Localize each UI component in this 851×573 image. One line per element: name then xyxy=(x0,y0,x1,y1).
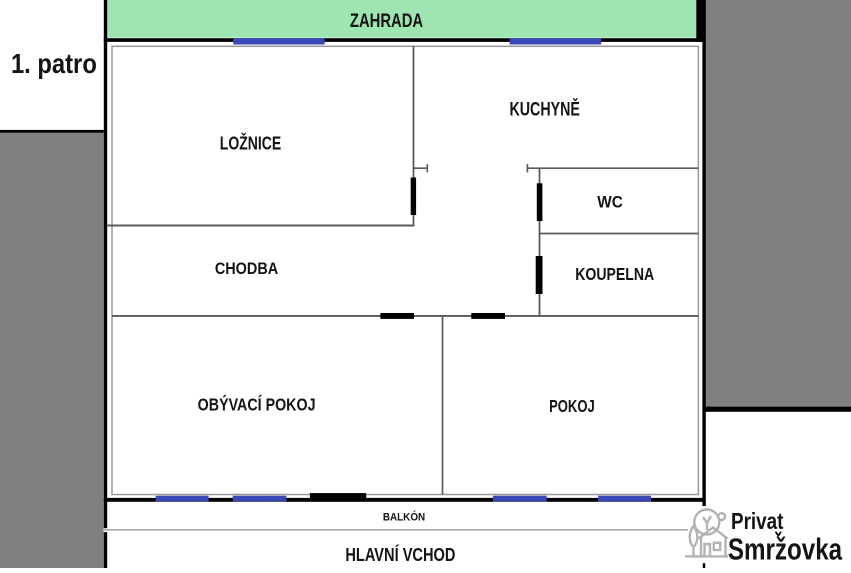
svg-text:CHODBA: CHODBA xyxy=(215,260,278,278)
svg-text:ZAHRADA: ZAHRADA xyxy=(350,10,423,31)
svg-text:WC: WC xyxy=(597,194,623,212)
svg-text:OBÝVACÍ POKOJ: OBÝVACÍ POKOJ xyxy=(198,394,316,415)
svg-text:KOUPELNA: KOUPELNA xyxy=(575,265,654,284)
svg-text:HLAVNÍ VCHOD: HLAVNÍ VCHOD xyxy=(345,544,455,565)
svg-text:Smržovka: Smržovka xyxy=(728,531,843,566)
svg-text:POKOJ: POKOJ xyxy=(549,397,595,416)
svg-text:LOŽNICE: LOŽNICE xyxy=(220,133,282,154)
svg-text:BALKÓN: BALKÓN xyxy=(383,510,425,524)
svg-text:1. patro: 1. patro xyxy=(11,50,97,80)
svg-text:KUCHYNĚ: KUCHYNĚ xyxy=(510,99,580,121)
